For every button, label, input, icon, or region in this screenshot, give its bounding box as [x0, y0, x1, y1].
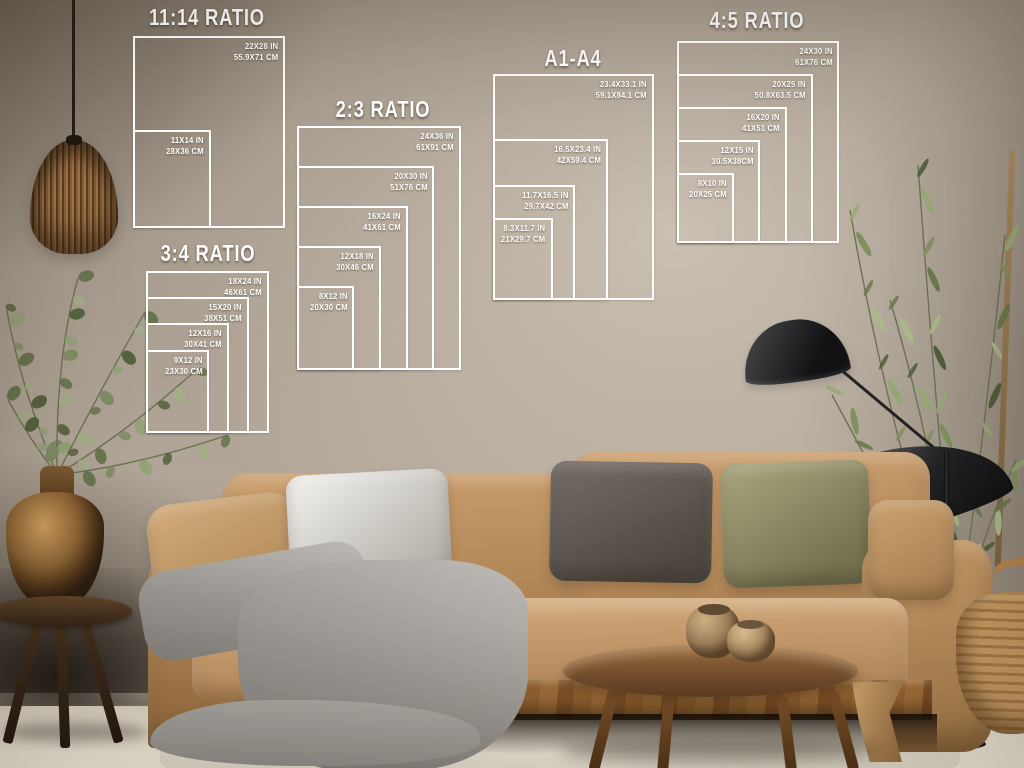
size-chart-overlays: 11:14 RATIO22X28 IN55.9X71 CM11X14 IN28X… [0, 0, 1024, 768]
size-label: 15X20 IN38X51 CM [204, 302, 242, 324]
size-label-cm: 61X91 CM [416, 142, 454, 153]
size-label-cm: 59.1X84.1 CM [596, 90, 647, 101]
size-label-inches: 12X16 IN [185, 328, 223, 339]
size-label: 24X36 IN61X91 CM [416, 131, 454, 153]
size-label-cm: 41X51 CM [742, 123, 780, 134]
size-label: 20X30 IN51X76 CM [390, 171, 428, 193]
panel-title-ratio-4-5: 4:5 RATIO [710, 7, 805, 34]
size-label: 16X24 IN41X61 CM [363, 211, 401, 233]
panel-title-a1-a4: A1-A4 [544, 45, 601, 72]
size-label-inches: 24X36 IN [416, 131, 454, 142]
size-label-inches: 24X30 IN [795, 46, 833, 57]
size-label: 16X20 IN41X51 CM [742, 112, 780, 134]
panel-ratio-4-5: 24X30 IN61X76 CM20X25 IN50.8X63.5 CM16X2… [677, 45, 835, 243]
size-label: 9X12 IN23X30 CM [165, 355, 203, 377]
size-label-cm: 51X76 CM [390, 182, 428, 193]
size-label: 12X16 IN30X41 CM [185, 328, 223, 350]
size-label-inches: 8.3X11.7 IN [501, 223, 545, 234]
panel-title-ratio-11-14: 11:14 RATIO [149, 4, 265, 31]
size-label-inches: 15X20 IN [204, 302, 242, 313]
size-label-inches: 11X14 IN [166, 135, 204, 146]
size-label: 20X25 IN50.8X63.5 CM [755, 79, 806, 101]
size-label: 8X12 IN20X30 CM [310, 291, 348, 313]
size-label-cm: 20X30 CM [310, 302, 348, 313]
size-label-cm: 30X46 CM [336, 262, 374, 273]
size-rect: 9X12 IN23X30 CM [146, 350, 209, 433]
size-label-inches: 18X24 IN [224, 276, 262, 287]
size-label-cm: 23X30 CM [165, 366, 203, 377]
size-label-inches: 20X25 IN [755, 79, 806, 90]
size-label-inches: 12X18 IN [336, 251, 374, 262]
size-label: 12X18 IN30X46 CM [336, 251, 374, 273]
size-label-inches: 23.4X33.1 IN [596, 79, 647, 90]
panel-ratio-11-14: 22X28 IN55.9X71 CM11X14 IN28X36 CM [133, 40, 281, 228]
size-label-cm: 30.5X38CM [711, 156, 753, 167]
panel-ratio-2-3: 24X36 IN61X91 CM20X30 IN51X76 CM16X24 IN… [297, 130, 457, 370]
size-label-inches: 20X30 IN [390, 171, 428, 182]
size-label-cm: 42X59.4 CM [554, 155, 601, 166]
panel-ratio-3-4: 18X24 IN46X61 CM15X20 IN38X51 CM12X16 IN… [146, 275, 265, 433]
size-label-inches: 9X12 IN [165, 355, 203, 366]
size-label-inches: 11.7X16.5 IN [522, 190, 568, 201]
panel-title-ratio-2-3: 2:3 RATIO [336, 96, 431, 123]
size-label: 12X15 IN30.5X38CM [711, 145, 753, 167]
size-rect: 8X12 IN20X30 CM [297, 286, 354, 370]
size-rect: 8X10 IN20X25 CM [677, 173, 734, 243]
size-label: 24X30 IN61X76 CM [795, 46, 833, 68]
living-room-print-size-guide: 11:14 RATIO22X28 IN55.9X71 CM11X14 IN28X… [0, 0, 1024, 768]
size-label: 11X14 IN28X36 CM [166, 135, 204, 157]
size-label-cm: 61X76 CM [795, 57, 833, 68]
size-label-inches: 8X12 IN [310, 291, 348, 302]
size-label-cm: 50.8X63.5 CM [755, 90, 806, 101]
size-label: 16.5X23.4 IN42X59.4 CM [554, 144, 601, 166]
size-label-inches: 8X10 IN [689, 178, 727, 189]
size-label: 11.7X16.5 IN29.7X42 CM [522, 190, 568, 212]
size-label: 18X24 IN46X61 CM [224, 276, 262, 298]
size-label: 8.3X11.7 IN21X29.7 CM [501, 223, 545, 245]
size-label-cm: 55.9X71 CM [234, 52, 278, 63]
size-rect: 11X14 IN28X36 CM [133, 130, 211, 228]
size-rect: 8.3X11.7 IN21X29.7 CM [493, 218, 553, 300]
size-label-inches: 16X24 IN [363, 211, 401, 222]
size-label-cm: 28X36 CM [166, 146, 204, 157]
panel-a1-a4: 23.4X33.1 IN59.1X84.1 CM16.5X23.4 IN42X5… [493, 78, 650, 300]
size-label-cm: 41X61 CM [363, 222, 401, 233]
size-label-cm: 20X25 CM [689, 189, 727, 200]
panel-title-ratio-3-4: 3:4 RATIO [161, 240, 256, 267]
size-label-inches: 12X15 IN [711, 145, 753, 156]
size-label: 8X10 IN20X25 CM [689, 178, 727, 200]
size-label-cm: 21X29.7 CM [501, 234, 545, 245]
size-label-inches: 16.5X23.4 IN [554, 144, 601, 155]
size-label-cm: 29.7X42 CM [522, 201, 568, 212]
size-label-inches: 16X20 IN [742, 112, 780, 123]
size-label: 23.4X33.1 IN59.1X84.1 CM [596, 79, 647, 101]
size-label-inches: 22X28 IN [234, 41, 278, 52]
size-label: 22X28 IN55.9X71 CM [234, 41, 278, 63]
